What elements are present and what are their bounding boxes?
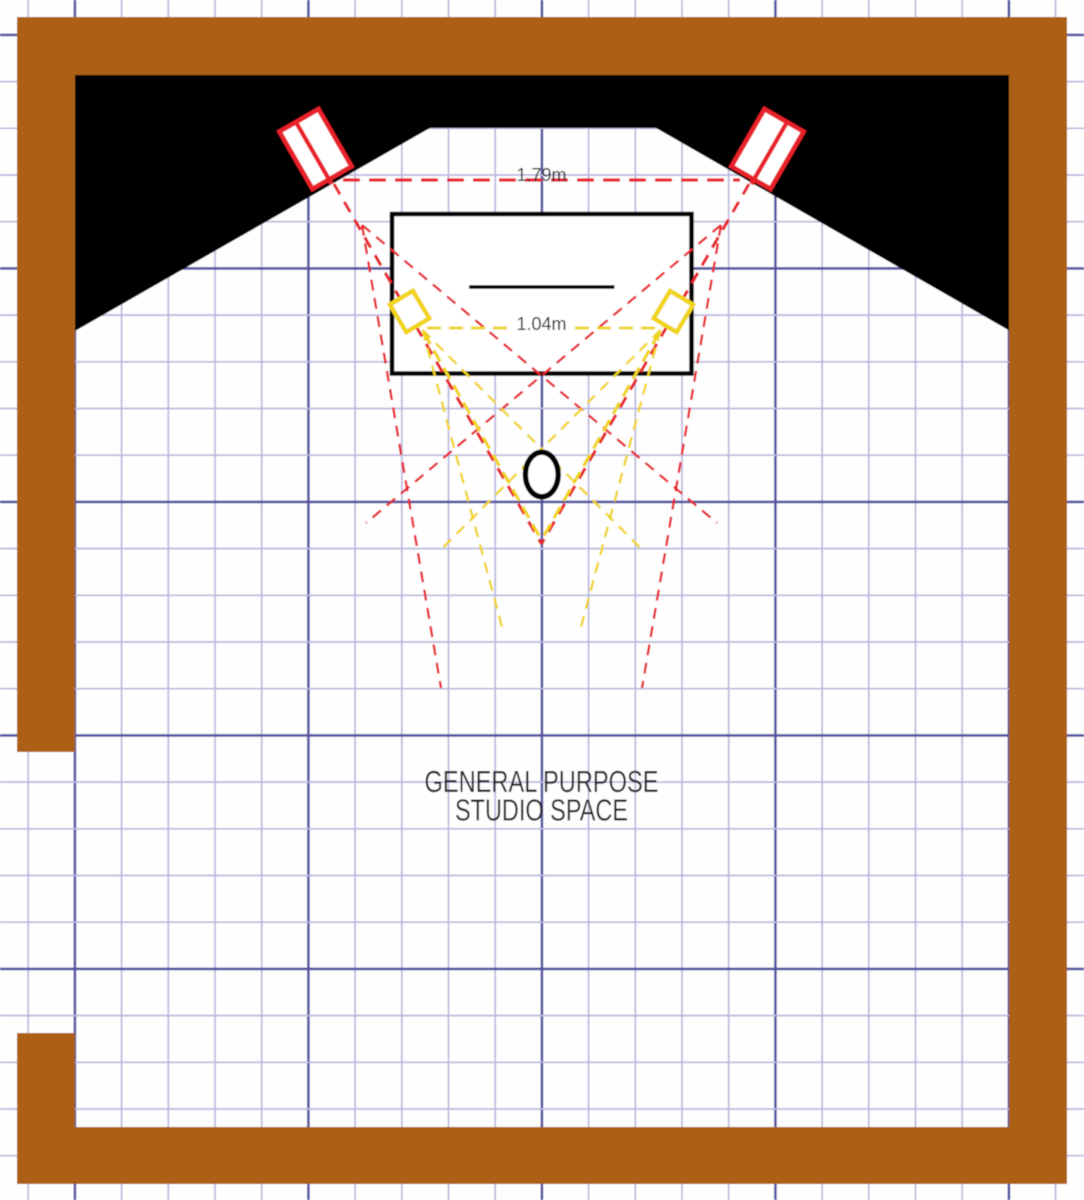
svg-text:1.79m: 1.79m	[517, 164, 567, 185]
svg-text:1.04m: 1.04m	[517, 313, 567, 334]
svg-text:STUDIO SPACE: STUDIO SPACE	[455, 794, 628, 828]
